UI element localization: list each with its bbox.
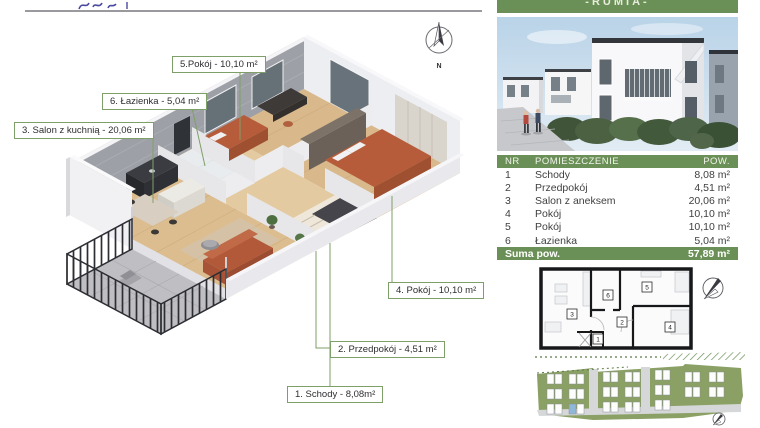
table-header: NR POMIESZCZENIE POW. xyxy=(497,155,738,168)
col-nr: NR xyxy=(497,156,535,167)
compass-icon-2d xyxy=(703,278,723,299)
label-room3: 3. Salon z kuchnią - 20,06 m² xyxy=(14,122,154,139)
row-area: 4,51 m² xyxy=(670,182,738,194)
room-marker-3: 3 xyxy=(570,312,574,319)
room-marker-5: 5 xyxy=(645,285,649,292)
green-strip xyxy=(663,352,745,360)
room-marker-4: 4 xyxy=(668,325,672,332)
site-plan xyxy=(533,362,745,428)
right-building xyxy=(709,50,738,135)
row-nr: 1 xyxy=(497,169,535,181)
label-room6: 6. Łazienka - 5,04 m² xyxy=(102,93,207,110)
label-room5: 5.Pokój - 10,10 m² xyxy=(172,56,266,73)
label-room2: 2. Przedpokój - 4,51 m² xyxy=(330,341,445,358)
table-row: 4 Pokój 10,10 m² xyxy=(497,208,738,221)
row-nr: 6 xyxy=(497,235,535,247)
table-row: 3 Salon z aneksem 20,06 m² xyxy=(497,194,738,207)
table-row: 6 Łazienka 5,04 m² xyxy=(497,234,738,247)
location-banner: -RUMIA- xyxy=(497,0,738,13)
label-room4: 4. Pokój - 10,10 m² xyxy=(388,282,484,299)
row-name: Łazienka xyxy=(535,235,670,247)
row-name: Przedpokój xyxy=(535,182,670,194)
flyer-page: N xyxy=(0,0,760,428)
row-area: 10,10 m² xyxy=(670,208,738,220)
room-marker-1: 1 xyxy=(596,337,600,344)
row-name: Pokój xyxy=(535,221,670,233)
location-banner-text: -RUMIA- xyxy=(497,0,738,8)
highlighted-unit xyxy=(569,404,576,414)
room-marker-2: 2 xyxy=(620,320,624,327)
row-area: 20,06 m² xyxy=(670,195,738,207)
row-area: 10,10 m² xyxy=(670,221,738,233)
row-nr: 3 xyxy=(497,195,535,207)
row-name: Schody xyxy=(535,169,670,181)
compass-icon-site xyxy=(713,413,725,425)
col-room: POMIESZCZENIE xyxy=(535,156,670,167)
estate-photo xyxy=(497,17,738,151)
table-row: 1 Schody 8,08 m² xyxy=(497,168,738,181)
row-name: Salon z aneksem xyxy=(535,195,670,207)
row-area: 8,08 m² xyxy=(670,169,738,181)
row-name: Pokój xyxy=(535,208,670,220)
room-marker-6: 6 xyxy=(606,293,610,300)
col-area: POW. xyxy=(670,156,738,167)
summary-value: 57,89 m² xyxy=(688,248,738,260)
row-nr: 2 xyxy=(497,182,535,194)
balcony-photo xyxy=(623,69,673,101)
summary-label: Suma pow. xyxy=(497,248,688,260)
table-summary: Suma pow. 57,89 m² xyxy=(497,247,738,260)
label-room1: 1. Schody - 8,08m² xyxy=(287,386,383,403)
row-nr: 4 xyxy=(497,208,535,220)
floorplan-2d: 3 6 5 2 1 4 xyxy=(533,262,745,360)
table-row: 5 Pokój 10,10 m² xyxy=(497,221,738,234)
row-nr: 5 xyxy=(497,221,535,233)
row-area: 5,04 m² xyxy=(670,235,738,247)
table-row: 2 Przedpokój 4,51 m² xyxy=(497,181,738,194)
area-table: NR POMIESZCZENIE POW. 1 Schody 8,08 m² 2… xyxy=(497,155,738,260)
